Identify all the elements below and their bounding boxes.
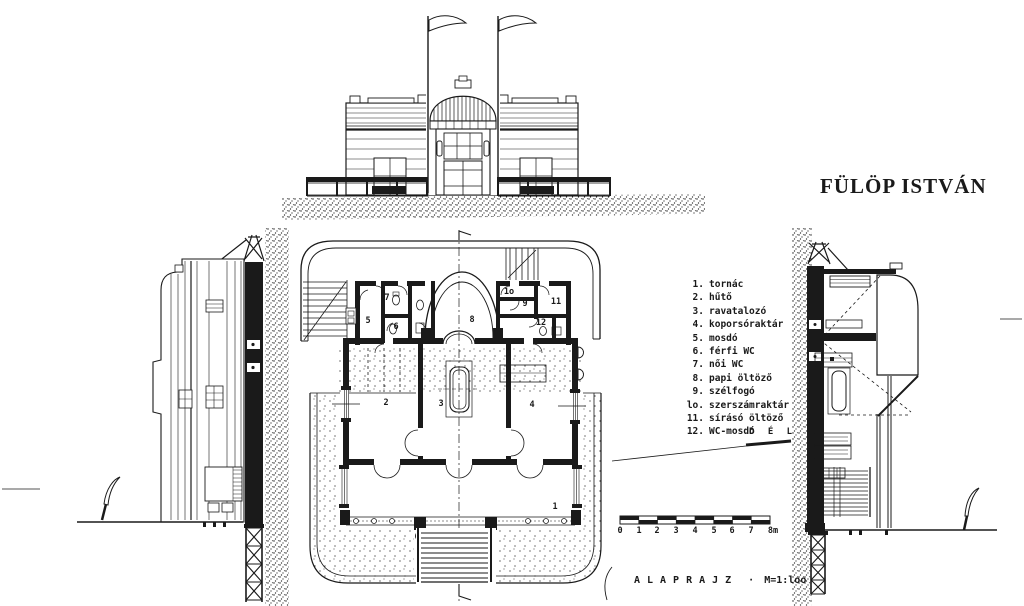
room-number-10: 1o <box>504 287 514 297</box>
room-number-3: 3 <box>438 399 443 409</box>
legend-item: 5.mosdó <box>666 332 789 345</box>
caption-scale: M=1:loo <box>764 575 806 586</box>
room-number-6: 6 <box>393 322 398 332</box>
room-number-7: 7 <box>384 293 389 303</box>
drawing-caption: ALAPRAJZ·M=1:loo <box>634 575 806 586</box>
south-direction-label: D É L <box>749 427 796 437</box>
room-legend: 1.tornác 2.hűtő 3.ravatalozó 4.koporsóra… <box>666 278 789 439</box>
legend-item: 9.szélfogó <box>666 385 789 398</box>
room-number-12: 12 <box>536 318 546 328</box>
scale-tick: 8m <box>763 526 783 536</box>
caption-separator: · <box>748 575 754 586</box>
side-elevation-drawing <box>77 228 289 606</box>
legend-item: 4.koporsóraktár <box>666 318 789 331</box>
room-number-2: 2 <box>383 398 388 408</box>
floor-plan-drawing <box>301 230 601 602</box>
scale-tick: 7 <box>744 526 758 536</box>
scale-tick: 6 <box>725 526 739 536</box>
scale-bar <box>620 516 770 524</box>
legend-item: 6.férfi WC <box>666 345 789 358</box>
scale-tick: 3 <box>669 526 683 536</box>
architect-name: FÜLÖP ISTVÁN <box>820 174 987 199</box>
room-number-9: 9 <box>522 299 527 309</box>
front-elevation-drawing <box>282 16 705 220</box>
scale-tick: 2 <box>650 526 664 536</box>
scale-tick: 0 <box>613 526 627 536</box>
architectural-drawing-sheet: FÜLÖP ISTVÁN 1.tornác 2.hűtő 3.ravataloz… <box>0 0 1024 606</box>
room-number-5: 5 <box>365 316 370 326</box>
legend-item: 8.papi öltöző <box>666 372 789 385</box>
cross-section-drawing <box>792 228 997 606</box>
south-leader-line <box>612 441 791 461</box>
drawing-canvas <box>0 0 1024 606</box>
room-number-11: 11 <box>551 297 561 307</box>
scale-tick: 1 <box>632 526 646 536</box>
scale-tick: 5 <box>707 526 721 536</box>
legend-item: 2.hűtő <box>666 291 789 304</box>
legend-item: 3.ravatalozó <box>666 305 789 318</box>
room-number-8: 8 <box>469 315 474 325</box>
room-number-1: 1 <box>552 502 557 512</box>
legend-item: lo.szerszámraktár <box>666 399 789 412</box>
caption-plan-label: ALAPRAJZ <box>634 575 738 586</box>
legend-item: 7.női WC <box>666 358 789 371</box>
room-number-4: 4 <box>529 400 534 410</box>
scale-tick: 4 <box>688 526 702 536</box>
legend-item: 11.sírásó öltöző <box>666 412 789 425</box>
legend-item: 1.tornác <box>666 278 789 291</box>
